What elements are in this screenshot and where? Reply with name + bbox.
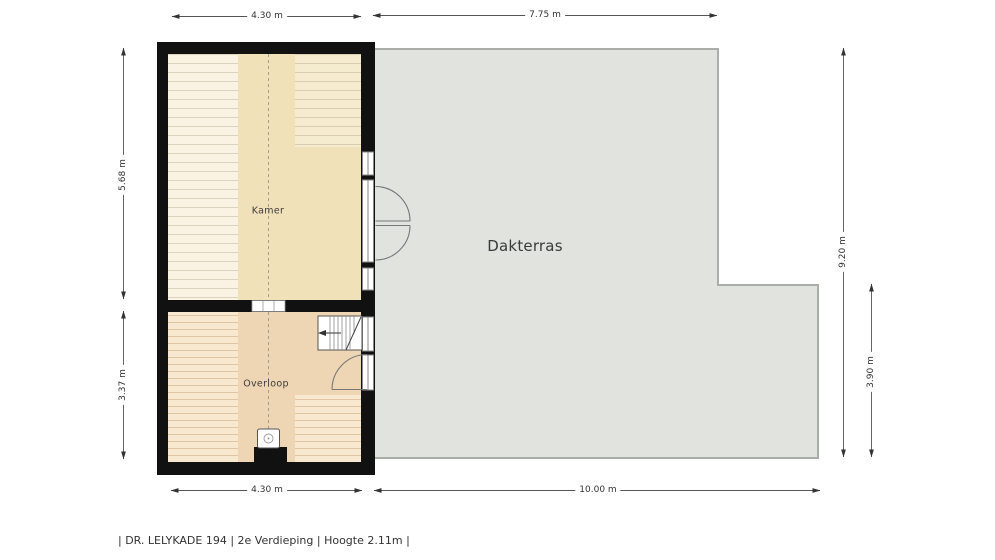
dim-left-kamer: 5.68 m bbox=[117, 155, 129, 195]
floorplan-drawing bbox=[0, 0, 995, 560]
dim-right-dakterras-lower: 3.90 m bbox=[865, 352, 877, 392]
dakterras-area bbox=[373, 49, 818, 458]
dim-bottom-kamer: 4.30 m bbox=[247, 484, 287, 496]
plan-caption: | DR. LELYKADE 194 | 2e Verdieping | Hoo… bbox=[118, 534, 410, 547]
dim-left-overloop: 3.37 m bbox=[117, 365, 129, 405]
dim-top-dakterras: 7.75 m bbox=[525, 9, 565, 21]
dim-bottom-dakterras: 10.00 m bbox=[575, 484, 620, 496]
room-label-overloop: Overloop bbox=[243, 379, 289, 390]
interior-opening bbox=[252, 301, 285, 312]
room-label-dakterras: Dakterras bbox=[487, 237, 562, 255]
staircase bbox=[318, 316, 362, 350]
room-label-kamer: Kamer bbox=[252, 206, 284, 217]
floorplan-canvas: 4.30 m 7.75 m 5.68 m 3.37 m 9.20 m 3.90 … bbox=[0, 0, 995, 560]
dim-right-dakterras: 9.20 m bbox=[837, 232, 849, 272]
kamer-floor bbox=[168, 54, 362, 300]
dim-top-kamer: 4.30 m bbox=[247, 10, 287, 22]
